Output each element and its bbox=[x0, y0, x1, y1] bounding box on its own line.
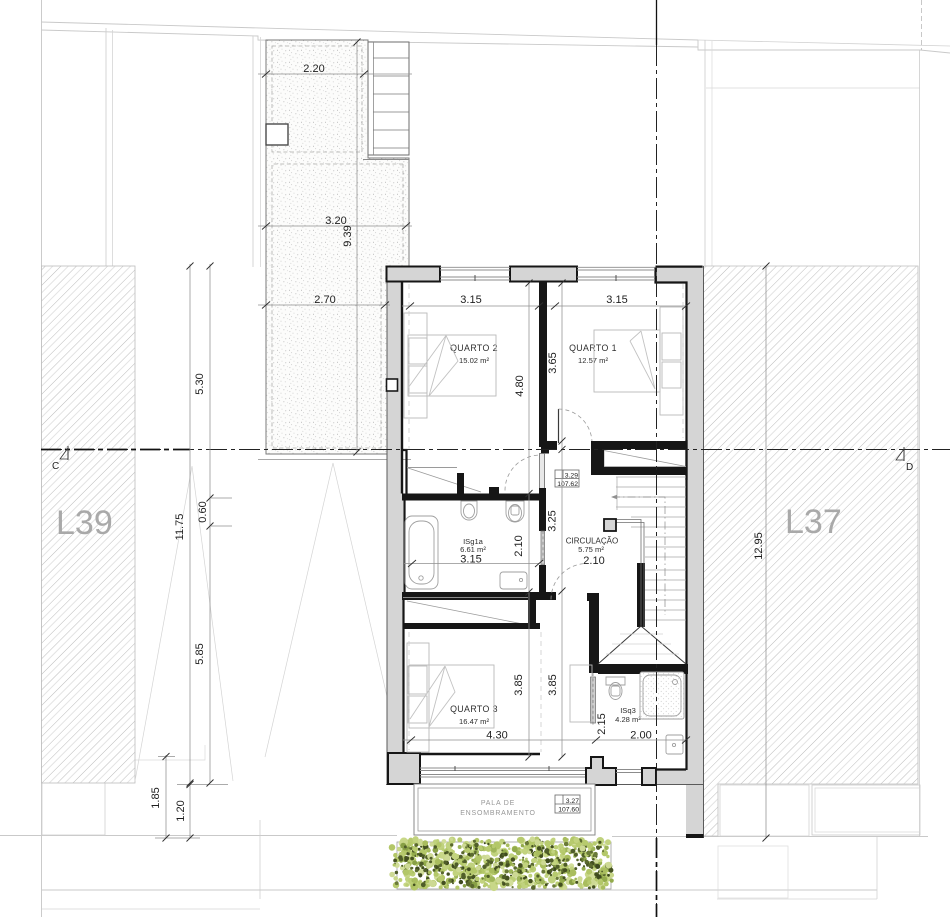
svg-text:11.75: 11.75 bbox=[174, 514, 186, 541]
svg-text:2.10: 2.10 bbox=[513, 535, 525, 556]
svg-text:3.25: 3.25 bbox=[547, 510, 559, 531]
svg-text:QUARTO 2: QUARTO 2 bbox=[450, 343, 498, 353]
svg-text:2.15: 2.15 bbox=[596, 713, 608, 734]
svg-text:12.95: 12.95 bbox=[753, 532, 765, 560]
svg-text:3.20: 3.20 bbox=[325, 215, 346, 227]
svg-text:3.65: 3.65 bbox=[547, 352, 559, 373]
svg-text:3.85: 3.85 bbox=[513, 674, 525, 695]
svg-text:4.80: 4.80 bbox=[514, 375, 526, 396]
svg-text:5.75 m²: 5.75 m² bbox=[578, 545, 604, 554]
svg-text:3.27: 3.27 bbox=[566, 798, 579, 805]
svg-text:15.02 m²: 15.02 m² bbox=[459, 356, 489, 365]
svg-text:3.85: 3.85 bbox=[547, 674, 559, 695]
svg-text:3.29: 3.29 bbox=[565, 472, 578, 479]
svg-text:12.57 m²: 12.57 m² bbox=[578, 356, 608, 365]
svg-text:4.30: 4.30 bbox=[486, 730, 507, 742]
svg-text:ENSOMBRAMENTO: ENSOMBRAMENTO bbox=[460, 810, 536, 817]
svg-text:3.15: 3.15 bbox=[606, 294, 627, 306]
svg-text:1.85: 1.85 bbox=[150, 787, 162, 808]
svg-text:2.70: 2.70 bbox=[314, 294, 335, 306]
svg-text:0.60: 0.60 bbox=[197, 501, 209, 522]
svg-text:5.30: 5.30 bbox=[194, 373, 206, 394]
svg-text:L39: L39 bbox=[56, 504, 113, 542]
svg-text:1.20: 1.20 bbox=[175, 800, 187, 821]
svg-text:3.15: 3.15 bbox=[460, 294, 481, 306]
svg-text:107.60: 107.60 bbox=[558, 807, 579, 814]
svg-text:2.00: 2.00 bbox=[630, 730, 651, 742]
svg-text:QUARTO 3: QUARTO 3 bbox=[450, 704, 498, 714]
svg-text:L37: L37 bbox=[785, 503, 842, 541]
svg-text:QUARTO 1: QUARTO 1 bbox=[569, 343, 617, 353]
svg-text:4.28 m²: 4.28 m² bbox=[615, 715, 641, 724]
svg-text:2.10: 2.10 bbox=[583, 555, 604, 567]
svg-text:3.15: 3.15 bbox=[460, 554, 481, 566]
svg-text:2.20: 2.20 bbox=[303, 63, 324, 75]
svg-text:C: C bbox=[52, 461, 59, 472]
svg-text:ISq3: ISq3 bbox=[620, 706, 636, 715]
svg-text:107.62: 107.62 bbox=[557, 481, 578, 488]
svg-text:PALA DE: PALA DE bbox=[481, 800, 515, 807]
svg-text:D: D bbox=[906, 462, 913, 473]
svg-text:9.39: 9.39 bbox=[342, 225, 354, 246]
svg-text:5.85: 5.85 bbox=[194, 643, 206, 664]
svg-text:16.47 m²: 16.47 m² bbox=[459, 717, 489, 726]
